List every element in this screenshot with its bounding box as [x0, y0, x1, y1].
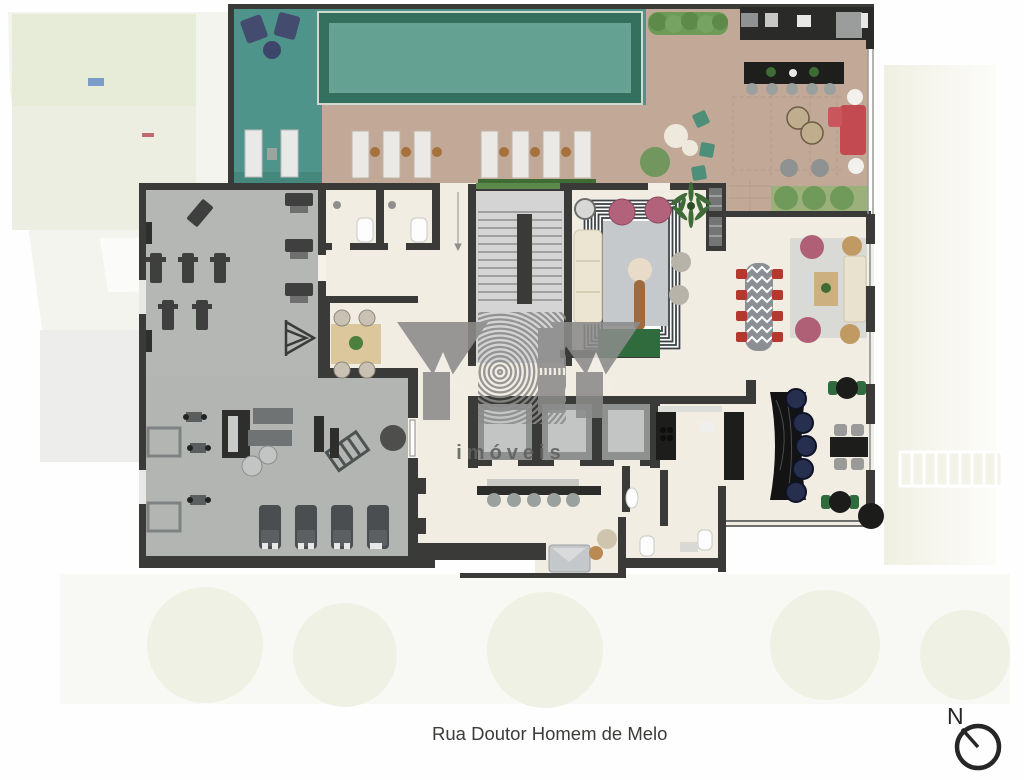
svg-text:N: N: [947, 703, 964, 729]
svg-text:imóveis: imóveis: [456, 442, 565, 464]
svg-text:Rua Doutor Homem de Melo: Rua Doutor Homem de Melo: [432, 723, 667, 744]
